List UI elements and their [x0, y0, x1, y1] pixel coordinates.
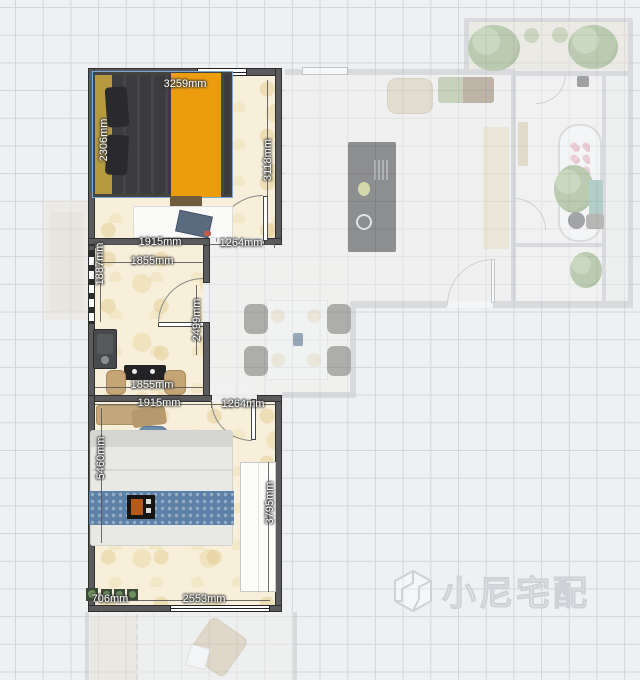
watermark-text: 小尼宅配	[442, 566, 590, 615]
balcony-left-mat	[50, 212, 84, 312]
dimension-label: 3795mm	[264, 482, 276, 525]
dining-table	[266, 300, 328, 380]
kitchen-right-wall-lower[interactable]	[203, 322, 210, 402]
kitchen-island	[348, 142, 396, 252]
dimension-label: 1855mm	[131, 255, 174, 267]
vanity-chair	[586, 214, 604, 229]
shaft-floor	[605, 73, 630, 303]
dim-tick	[274, 241, 275, 248]
place-setting	[307, 309, 321, 323]
bath-shelf	[518, 122, 528, 166]
balcony-plant-left	[468, 25, 520, 71]
dimension-label: 3118mm	[262, 139, 274, 181]
balcony-top-wall-right	[628, 20, 633, 72]
dim-tick	[207, 241, 208, 248]
balcony-pot	[577, 76, 589, 87]
bathroom-left-wall	[511, 73, 516, 303]
dining-bottom-wall	[282, 392, 356, 398]
dimension-label: 1915mm	[139, 236, 182, 248]
sink-grate	[374, 160, 388, 180]
vanity-items	[132, 369, 137, 374]
tray-candle	[131, 499, 143, 515]
bed2-fold	[91, 469, 232, 471]
bed-runner-orange	[171, 73, 221, 197]
place-setting	[307, 353, 321, 367]
dimension-label: 2553mm	[183, 593, 226, 605]
bed2[interactable]	[90, 430, 233, 546]
wardrobe-divider	[258, 463, 259, 591]
dimension-label: 1264mm	[220, 237, 263, 249]
dimension-label: 706mm	[92, 593, 129, 605]
place-setting	[271, 353, 285, 367]
kitchen-right-wall-upper[interactable]	[203, 245, 210, 283]
balcony-divider	[136, 614, 138, 680]
bathroom-cabinet	[589, 180, 603, 216]
bed2-top-sheet	[91, 431, 232, 447]
bedroom2-window[interactable]	[170, 605, 270, 612]
bathroom-plant	[554, 165, 594, 213]
watermark: 小尼宅配	[392, 566, 590, 615]
dimension-label: 3259mm	[164, 78, 207, 90]
balcony-shrub	[524, 28, 539, 43]
bath-stool	[568, 212, 585, 229]
balcony-bottom-wall-left	[85, 612, 89, 680]
bedroom2-right-wall[interactable]	[275, 395, 282, 612]
bedroom1-right-wall[interactable]	[275, 68, 282, 245]
hallway-plant	[570, 252, 602, 288]
kitchen-chair[interactable]	[106, 370, 126, 395]
rattan-chair	[387, 78, 433, 114]
bed2-runner-blue	[89, 491, 234, 525]
dining-chair	[244, 346, 268, 376]
place-setting	[271, 309, 285, 323]
double-bed-selected[interactable]	[92, 71, 233, 198]
balcony-shrub	[552, 27, 568, 43]
cutting-board	[358, 182, 370, 196]
dimension-label: 5460mm	[95, 437, 107, 480]
table-centerpiece	[293, 333, 303, 346]
console-planter	[438, 77, 494, 103]
dimension-label: 2306mm	[98, 119, 110, 162]
dimension-label: 1264mm	[222, 398, 265, 410]
vanity-table[interactable]	[124, 365, 166, 380]
sink-faucet	[101, 356, 109, 364]
kitchen-counter	[483, 127, 509, 249]
dimension-label: 1887mm	[94, 243, 106, 286]
tray-cup	[146, 499, 151, 504]
dim-tick	[211, 401, 212, 408]
desk[interactable]	[133, 206, 233, 238]
bathroom-divider-wall	[513, 243, 605, 247]
vanity-items	[150, 369, 155, 374]
dining-chair	[327, 346, 351, 376]
sink-basin	[97, 334, 113, 354]
bathroom-top-wall	[513, 71, 632, 76]
dimension-label: 1855mm	[131, 379, 174, 391]
balcony-plant-right	[568, 25, 618, 69]
cube-logo-icon	[392, 569, 434, 613]
tray-cup	[146, 508, 151, 513]
dimension-label: 1915mm	[138, 397, 181, 409]
living-window	[302, 67, 348, 75]
desk-accessory	[204, 231, 211, 236]
floorplan-canvas: 3259mm 2306mm 3118mm 1915mm 1264mm 1855m…	[0, 0, 640, 680]
bed-tray	[127, 495, 155, 519]
stove-burner	[356, 214, 372, 230]
balcony-bottom-wall-right	[293, 612, 297, 680]
kitchen-sink-unit[interactable]	[93, 329, 117, 369]
balcony-bottom-mat	[90, 616, 138, 680]
balcony-top-wall-top	[464, 18, 632, 22]
dining-chair	[244, 304, 268, 334]
apartment-right-wall	[628, 70, 633, 307]
dimension-label: 2499mm	[191, 299, 203, 342]
window-glass-line	[171, 608, 269, 609]
dining-chair	[327, 304, 351, 334]
